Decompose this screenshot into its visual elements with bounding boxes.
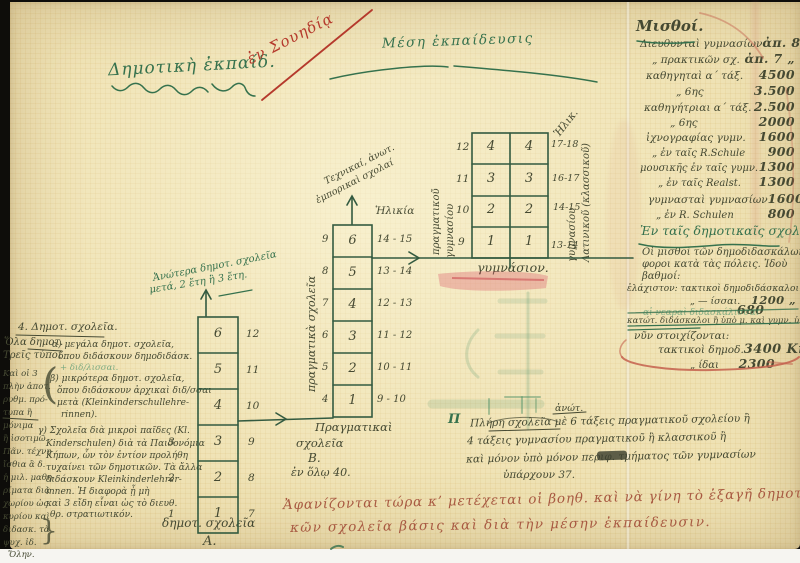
- ladder-age: 11 - 12: [377, 331, 412, 342]
- salary-label: „ 6ης: [670, 118, 698, 129]
- salary-value: 2000: [759, 115, 795, 128]
- salary-title: Μισθοί.: [636, 19, 703, 35]
- salary-row: „ 6ης3.500: [676, 84, 795, 98]
- margin-side-note: ἴσθια ἃ δ.: [3, 461, 45, 470]
- salary-row: ἰχνογραφίας γυμν.1600: [646, 130, 795, 144]
- grid-cell: 1: [472, 235, 510, 249]
- grid-row-label: 12: [456, 142, 469, 153]
- margin-item-b: β) μικρότερα δημοτ. σχολεῖα,: [50, 375, 184, 384]
- margin-side-note: ρίματα διὰ: [3, 487, 50, 496]
- salary-value: ἀπ. 7 „: [744, 52, 795, 65]
- margin-item-b: μετὰ (Kleinkinderschullehre-: [57, 399, 189, 408]
- salary-row: καθηγήτριαι α΄ τάξ.2.500: [644, 100, 795, 114]
- ladder-cell: 5: [198, 363, 238, 377]
- grid-cell: 4: [510, 140, 548, 154]
- ladder-left-number: 5: [322, 363, 328, 374]
- ladder-age: 10 - 11: [377, 363, 412, 374]
- salary-label: ἰχνογραφίας γυμν.: [646, 133, 746, 144]
- ladder-age: 9 - 10: [377, 395, 406, 406]
- margin-item-c: Kinderschulen) διὰ τὰ Παιδονόμια: [46, 440, 205, 449]
- salary-value: 3.500: [754, 84, 795, 97]
- ladder-right-number: 10: [246, 401, 259, 412]
- salary-row: „ ἐν ταῖς R.Schule900: [652, 145, 795, 160]
- salary-row: „ ἐν ταῖς Realst.1300: [658, 175, 795, 190]
- ladder-right-number: 9: [248, 437, 255, 448]
- salary-label: „ — ίσσαι.: [690, 297, 740, 307]
- grid-cell: 2: [472, 203, 510, 217]
- margin-item-c: διδάσκουν Kleinkinderlehrer-: [46, 476, 182, 485]
- ladder-cell: 2: [333, 362, 372, 376]
- ladder-cell: 6: [198, 327, 238, 341]
- salary-row: Διευθυνταὶ γυμνασίωνἀπ. 8 χιλ. Κρ.: [640, 36, 795, 50]
- age-header: Ἡλικία: [375, 206, 414, 217]
- salary-label: γυμνασταὶ γυμνασίων: [648, 195, 768, 206]
- margin-brace-close: }: [40, 516, 58, 545]
- margin-item-c: τυχαίνει τῶν δημοτικῶν. Τὰ ἄλλα: [46, 464, 202, 473]
- salary-value: 2300: [739, 357, 775, 370]
- salary-row-3400: τακτικοὶ δημοδ.3400 Kr.: [658, 343, 795, 357]
- salary-value: 3400 Kr.: [744, 343, 800, 357]
- margin-item-c: Κήπων, ὧν τὸν ἐντίον προλήθη: [46, 452, 188, 461]
- salary-label: τακτικοὶ δημοδ.: [658, 345, 744, 356]
- ladder-right-number: 12: [246, 329, 259, 340]
- margin-side-note: ψυχ. ἰδ.: [3, 539, 37, 548]
- margin-side-note: Καὶ οἱ 3: [3, 370, 38, 379]
- salary-value: 1300: [759, 160, 795, 173]
- grid-row-label: 9: [458, 237, 465, 248]
- primary-salaries-title: Ἐν ταῖς δημοτικαῖς σχολαῖς: [640, 224, 800, 237]
- real-ladder-caption: Β.: [308, 452, 321, 465]
- ladder-left-number: 4: [322, 395, 328, 406]
- margin-item-c: θρ. στρατιωτικόν.: [50, 511, 133, 520]
- salary-label: „ ἐν R. Schulen: [656, 211, 734, 222]
- margin-side-note: τυπα ἢ: [3, 409, 32, 418]
- salary-value: 800: [768, 207, 795, 220]
- margin-item-c: γ) Σχολεῖα διὰ μικροὶ παῖδες (Kl.: [38, 427, 190, 436]
- ladder-age: 13 - 14: [377, 267, 412, 278]
- grid-row-label: 10: [456, 205, 469, 216]
- ladder-cell: 5: [333, 266, 372, 280]
- ladder-cell: 4: [333, 298, 372, 312]
- margin-item-c: καὶ 3 εἴδη εἶναι ὡς τὸ διευθ.: [46, 500, 177, 509]
- salary-value: 4500: [759, 68, 795, 81]
- salary-row: μουσικῆς ἐν ταῖς γυμν.1300: [640, 160, 795, 175]
- salary-label: μουσικῆς ἐν ταῖς γυμν.: [640, 164, 758, 175]
- salary-label: „ ἐν ταῖς R.Schule: [652, 149, 745, 160]
- salary-row: „ ἐν R. Schulen800: [656, 207, 795, 222]
- ink-blot: [597, 450, 627, 460]
- primary-ladder-caption: δημοτ. σχολεῖα: [162, 517, 255, 530]
- salary-row: „ πρακτικῶν σχ.ἀπ. 7 „: [652, 52, 795, 66]
- ladder-cell: 1: [333, 394, 372, 408]
- margin-side-note: χωρίου ὡς: [3, 500, 48, 509]
- grid-right-label: γυμνασίου: [568, 208, 579, 262]
- full-note-line: ὑπάρχουν 37.: [503, 470, 575, 481]
- salary-label: „ ίδαι: [690, 361, 719, 372]
- margin-side-note: ἡ μιλ. μαθη-: [3, 474, 55, 483]
- salary-label: καθηγήτριαι α΄ τάξ.: [644, 103, 752, 114]
- primary-salaries-note: φοροι κατὰ τὰς πόλεις. Ἰδοὺ: [642, 260, 787, 271]
- ladder-cell: 6: [333, 234, 372, 248]
- grid-age: 17-18: [551, 140, 578, 150]
- margin-side-note: ἢ ἰσοτιμῶ.: [3, 435, 48, 444]
- real-ladder-caption: σχολεῖα: [296, 437, 343, 449]
- salary-value: 1600: [768, 192, 800, 205]
- margin-side-note: μόνιμα: [3, 422, 33, 431]
- margin-item-a: + διδ/λισσαι.: [60, 364, 118, 373]
- salary-row: „ 6ης2000: [670, 115, 795, 129]
- ladder-age: 12 - 13: [377, 299, 412, 310]
- salary-value: 1300: [759, 175, 795, 188]
- ladder-age: 14 - 15: [377, 235, 412, 246]
- margin-item-a: α) μεγάλα δημοτ. σχολεῖα,: [52, 341, 174, 350]
- margin-side-note: Ὅλην.: [8, 551, 35, 560]
- margin-item-a: ὅπου διδάσκουν δημοδιδάσκ.: [58, 353, 192, 362]
- real-ladder-caption: ἐν ὅλῳ 40.: [291, 467, 351, 479]
- ladder-cell: 2: [198, 471, 238, 485]
- salary-row-struck: κατώτ. διδάσκαλοι ἢ ὑπὸ μ. καὶ γυμν. ὑπη…: [627, 317, 800, 326]
- salary-value: 900: [768, 145, 795, 158]
- grid-cell: 1: [510, 235, 548, 249]
- salary-label: καθηγηταὶ α΄ τάξ.: [646, 71, 743, 82]
- ladder-left-number: 9: [322, 235, 328, 246]
- margin-item-b: ὅπου διδάσκουν ἀρχικαὶ διδ/σσαι: [57, 387, 212, 396]
- pi-mark: Π: [448, 413, 460, 427]
- primary-ladder-caption2: Α.: [203, 535, 217, 549]
- grid-cell: 3: [510, 172, 548, 186]
- grid-row-label: 11: [456, 174, 469, 185]
- grid-age: 16-17: [552, 174, 579, 184]
- margin-side-note: Πᾶν. τέχνη: [3, 448, 51, 457]
- salary-value: ἀπ. 8 χιλ. Κρ.: [762, 36, 800, 49]
- salary-label: „ 6ης: [676, 87, 704, 98]
- grid-right-label: Λατινικοῦ (κλασσικοῦ): [582, 143, 593, 262]
- salary-label: „ πρακτικῶν σχ.: [652, 55, 740, 66]
- primary-salaries-note: Οἱ μισθοὶ τῶν δημοδιδασκάλων διά-: [642, 248, 800, 259]
- salary-row-now: νῦν στοιχίζονται:: [634, 331, 729, 342]
- grid-left-label: πραγματικοῦ: [432, 188, 443, 255]
- ladder-left-number: 8: [322, 267, 328, 278]
- full-note-super: ἀνώτ.: [555, 404, 583, 414]
- salary-label: „ ἐν ταῖς Realst.: [658, 179, 741, 190]
- salary-row: γυμνασταὶ γυμνασίων1600: [648, 192, 795, 206]
- salary-value: 1600: [759, 130, 795, 143]
- ladder-cell: 3: [333, 330, 372, 344]
- margin-item-b: rinnen).: [61, 411, 97, 420]
- ladder-cell: 4: [198, 399, 238, 413]
- grid-cell: 2: [510, 203, 548, 217]
- grid-cell: 3: [472, 172, 510, 186]
- scanner-background: [0, 549, 800, 563]
- margin-item-c: innen. Ἡ διαφορὰ ᾗ μὴ: [46, 488, 150, 497]
- scanned-manuscript-page: Δημοτικὴ ἐκπαίδ. ἐν Σουηδίᾳ Μέση ἐκπαίδε…: [0, 0, 800, 563]
- salary-label: Διευθυνταὶ γυμνασίων: [640, 39, 762, 50]
- ladder-right-number: 11: [246, 365, 259, 376]
- ladder-left-number: 6: [322, 331, 328, 342]
- salary-row-2300: „ ίδαι2300: [690, 357, 775, 372]
- ladder-right-number: 8: [248, 473, 255, 484]
- gymnasium-caption: γυμνάσιον.: [477, 261, 549, 274]
- grid-left-label: γυμνασίου: [446, 204, 457, 258]
- ladder-left-number: 7: [322, 299, 328, 310]
- real-schools-side-label: πραγματικὰ σχολεῖα: [306, 276, 318, 392]
- real-ladder-caption: Πραγματικαὶ: [315, 421, 392, 433]
- margin-heading: 4. Δημοτ. σχολεῖα.: [18, 322, 118, 333]
- salary-value: 2.500: [754, 100, 795, 113]
- margin-side-note: ρυθμ. πρό-: [3, 396, 48, 405]
- salary-row: καθηγηταὶ α΄ τάξ.4500: [646, 68, 795, 82]
- grid-cell: 4: [472, 140, 510, 154]
- margin-side-note: πλὴν ἀποτ.: [3, 383, 51, 392]
